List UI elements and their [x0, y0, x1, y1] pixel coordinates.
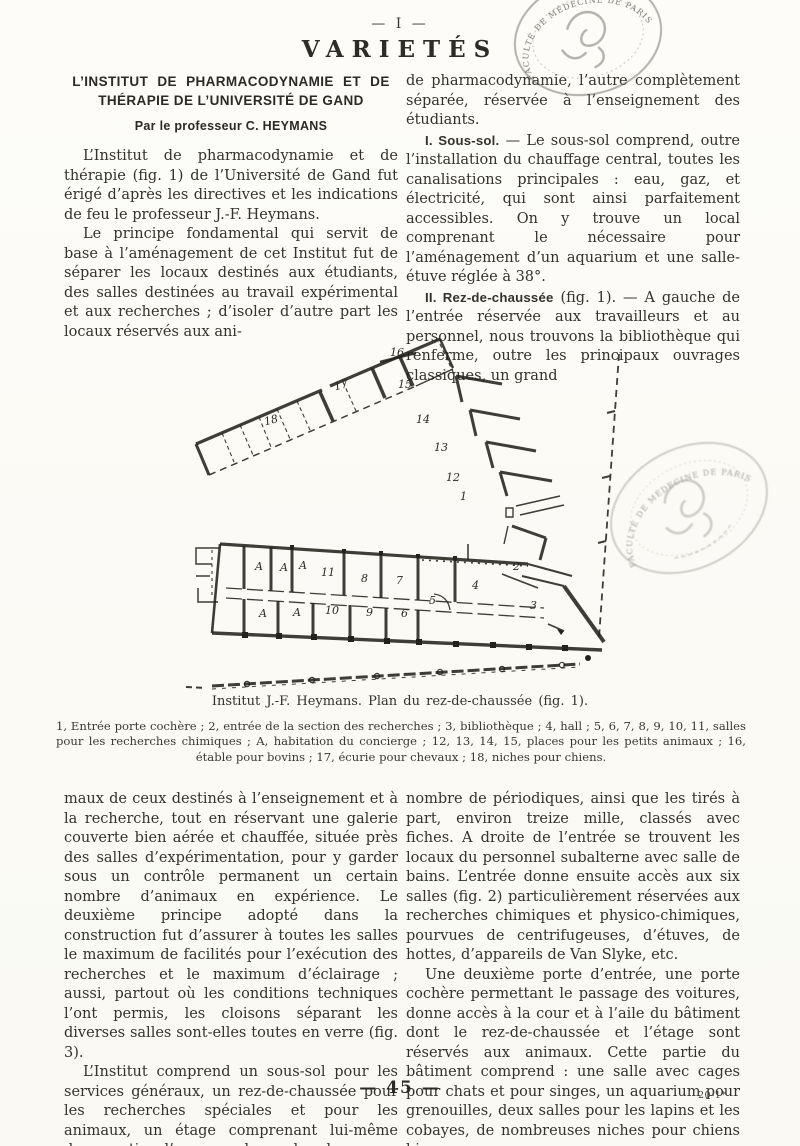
- room-label: 4: [471, 579, 479, 592]
- page-number: — 45 —: [0, 1078, 800, 1098]
- plan-fence: [186, 662, 580, 689]
- article-title-line1: L’INSTITUT DE PHARMACODYNAMIE ET DE: [64, 72, 398, 91]
- paragraph-text: — Le sous-sol comprend, outre l’installa…: [406, 133, 740, 286]
- runin-head-sous-sol: I. Sous-sol.: [425, 133, 499, 148]
- room-label: 6: [401, 607, 408, 620]
- figure-caption: Institut J.-F. Heymans. Plan du rez-de-c…: [0, 694, 800, 709]
- article-byline: Par le professeur C. HEYMANS: [64, 119, 398, 133]
- paragraph: Une deuxième porte d’entrée, une porte c…: [406, 966, 740, 1146]
- room-label: A: [258, 607, 267, 620]
- article-title: L’INSTITUT DE PHARMACODYNAMIE ET DE THÉR…: [64, 72, 398, 110]
- scanned-page: — I — VARIETÉS L’INSTITUT DE PHARMACODYN…: [0, 0, 800, 1146]
- room-label: 1: [460, 490, 467, 503]
- room-label: 14: [416, 413, 430, 426]
- room-label: 9: [366, 606, 373, 619]
- room-label: 5: [429, 594, 436, 607]
- paragraph: L’Institut de pharmacodynamie et de thér…: [64, 147, 398, 225]
- room-label: 10: [325, 604, 339, 617]
- paragraph: maux de ceux destinés à l’enseignement e…: [64, 790, 398, 1063]
- room-label: 12: [446, 471, 460, 484]
- room-label: A: [298, 559, 307, 572]
- signature-mark: 20-1*: [698, 1090, 727, 1101]
- room-label: 18: [263, 412, 280, 428]
- room-label: 15: [398, 378, 412, 391]
- room-label: 8: [361, 572, 368, 585]
- paragraph: Le principe fondamental qui servit de ba…: [64, 225, 398, 342]
- plan-upper-wing: [196, 339, 453, 475]
- stamp-text: FACULTÉ DE MÉDECINE DE PARIS: [603, 446, 766, 569]
- paragraph: nombre de périodiques, ainsi que les tir…: [406, 790, 740, 966]
- runin-head-rez-de-chaussee: II. Rez-de-chaussée: [425, 290, 554, 305]
- room-label: 16: [390, 346, 404, 359]
- paragraph: L’Institut comprend un sous-sol pour les…: [64, 1063, 398, 1146]
- room-label: 3: [530, 599, 537, 612]
- floor-plan-figure: 16 15 14 13 12 1 17 18 A A A 11 8 7 2 4 …: [172, 336, 652, 692]
- article-title-line2: THÉRAPIE DE L’UNIVERSITÉ DE GAND: [64, 91, 398, 110]
- plan-room-labels: 16 15 14 13 12 1 17 18 A A A 11 8 7 2 4 …: [254, 346, 537, 620]
- room-label: 13: [434, 441, 448, 454]
- floor-plan-drawing: 16 15 14 13 12 1 17 18 A A A 11 8 7 2 4 …: [172, 336, 652, 692]
- stamp-emblem: [645, 470, 734, 562]
- room-label: 7: [396, 574, 403, 587]
- figure-legend: 1, Entrée porte cochère ; 2, entrée de l…: [56, 719, 746, 765]
- room-label: A: [279, 561, 288, 574]
- room-label: 2: [512, 560, 520, 573]
- paragraph: I. Sous-sol. — Le sous-sol comprend, out…: [406, 131, 740, 288]
- folio-number: — I —: [0, 16, 800, 32]
- stamp-emblem: [555, 8, 614, 74]
- room-label: 11: [321, 566, 335, 579]
- room-label: A: [254, 560, 263, 573]
- room-label: A: [292, 606, 301, 619]
